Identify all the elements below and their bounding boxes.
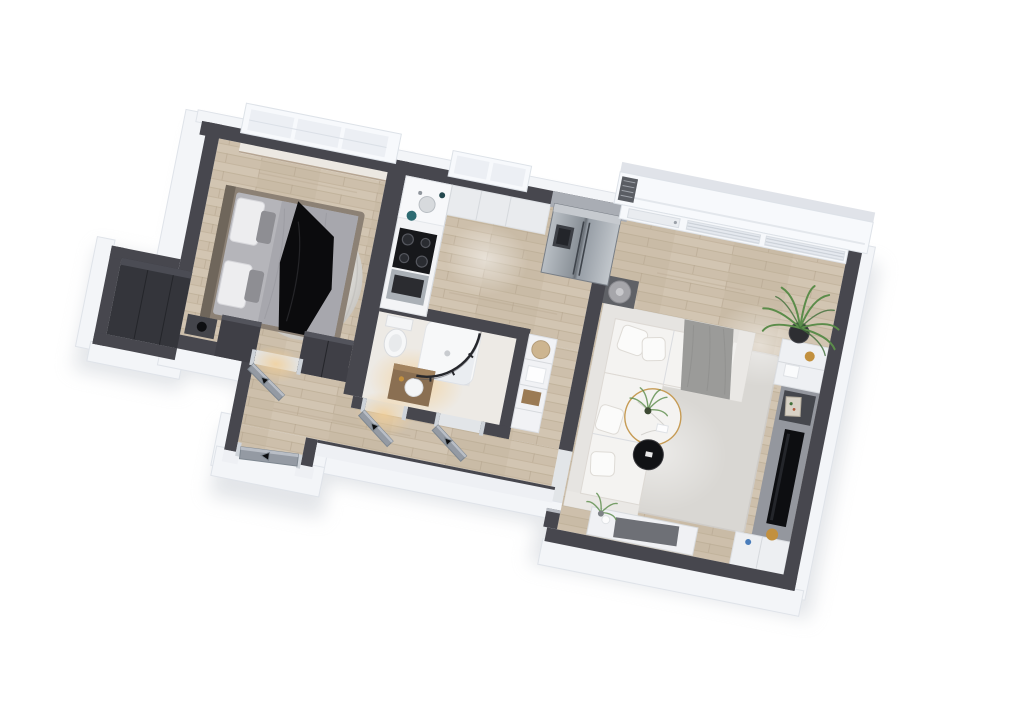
white-decor-box bbox=[783, 364, 799, 379]
floorplan-image bbox=[0, 0, 1024, 724]
cooktop bbox=[392, 228, 437, 275]
table-book bbox=[656, 424, 668, 433]
floorplan-stage bbox=[0, 0, 1024, 724]
leaning-art-frame bbox=[785, 397, 801, 417]
shelf-bin bbox=[526, 366, 547, 384]
